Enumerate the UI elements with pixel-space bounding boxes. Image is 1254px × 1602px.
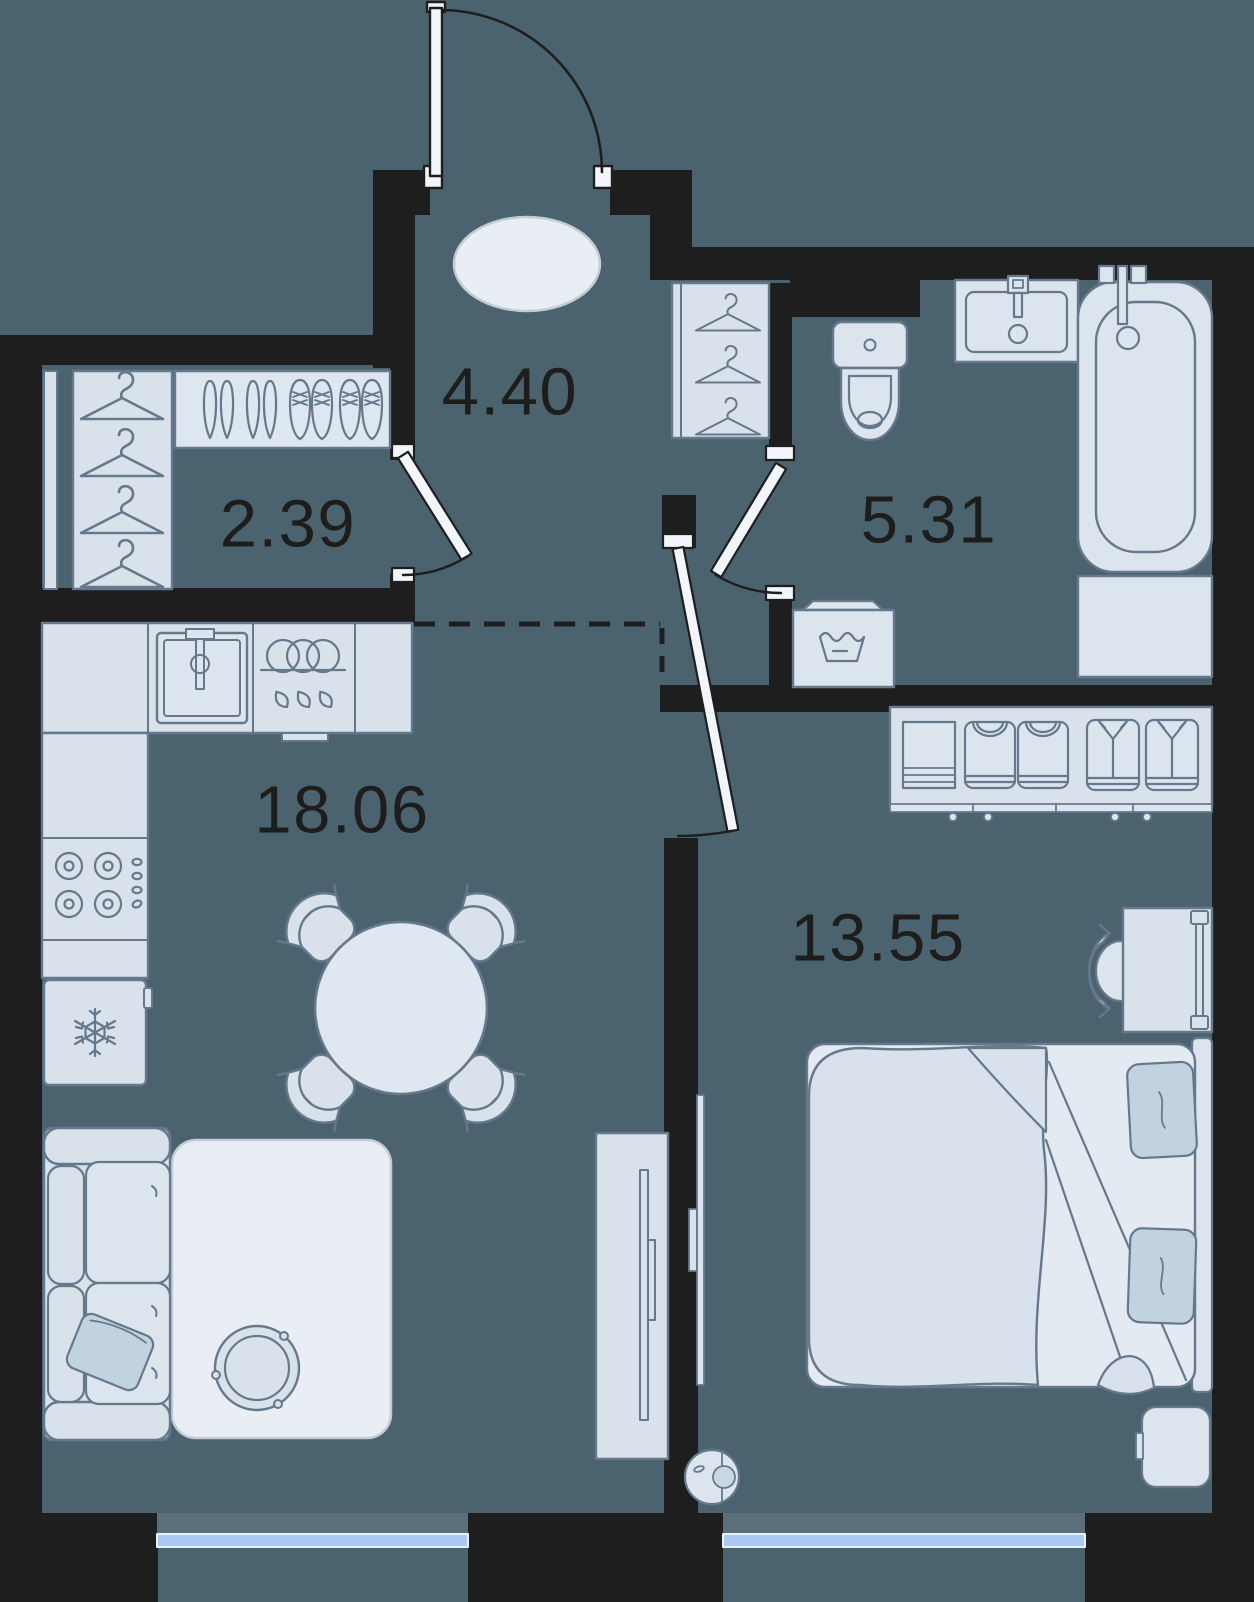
room-area-label-hallway: 4.40 <box>442 354 578 431</box>
hanger-rack <box>73 371 172 589</box>
folded-tshirt-icon <box>1018 722 1068 788</box>
tv-console-icon <box>596 1133 668 1459</box>
entry-door-icon <box>424 2 612 188</box>
folded-clothes-icon <box>903 722 955 788</box>
wall-left <box>0 335 42 1513</box>
wall-entry-right-jamb <box>610 170 692 215</box>
nightstand-icon <box>1136 1407 1210 1487</box>
kitchen-zone-dashed-boundary <box>414 624 662 683</box>
room-area-label-wardrobe: 2.39 <box>220 486 356 563</box>
wall-right <box>1212 247 1254 1602</box>
wall-bathroom-top <box>650 247 1254 280</box>
bathroom-door-icon <box>711 446 794 600</box>
bathroom-counter <box>1078 576 1212 677</box>
clothes-rail-icon <box>890 804 1212 821</box>
kitchen-sink-icon <box>157 629 247 723</box>
wardrobe-door-icon <box>392 444 472 582</box>
wall-wardrobe-bottom <box>42 588 415 623</box>
bathroom-furniture <box>793 266 1212 687</box>
floor-plan-drawing <box>0 0 1254 1602</box>
floor-plan: 4.40 2.39 5.31 18.06 13.55 <box>0 0 1254 1602</box>
bathtub-icon <box>1078 266 1212 572</box>
kitchen-counter-left <box>42 733 148 978</box>
sofa-icon <box>44 1128 170 1440</box>
dining-table-icon <box>315 922 487 1094</box>
folded-shirt-icon <box>1146 720 1198 790</box>
room-area-label-bedroom: 13.55 <box>790 900 965 977</box>
living-room-window <box>157 1513 468 1547</box>
bed-pillow-icon <box>1127 1061 1198 1158</box>
desk-icon <box>1123 908 1212 1032</box>
bedroom-wardrobe <box>890 707 1212 821</box>
wall-bottom-left <box>0 1513 158 1602</box>
bed-icon <box>807 1038 1212 1394</box>
wall-entry-left-jamb <box>373 170 430 215</box>
folded-shirt-icon <box>1087 720 1139 790</box>
bedroom-furniture <box>685 707 1212 1504</box>
fridge-icon <box>44 980 152 1085</box>
room-area-label-kitchen-living: 18.06 <box>254 772 429 849</box>
robot-vacuum-icon <box>685 1450 739 1504</box>
bathroom-sink-icon <box>955 276 1078 362</box>
entry-rug-icon <box>454 217 600 311</box>
dining-set <box>269 876 533 1140</box>
wall-bottom-right <box>1085 1513 1254 1602</box>
kitchen-furniture <box>42 623 533 1140</box>
wall-bath-door-side <box>769 588 792 687</box>
bedroom-window <box>723 1513 1085 1547</box>
room-area-label-bathroom: 5.31 <box>861 482 997 559</box>
wall-bottom-middle <box>468 1513 723 1602</box>
washing-machine-icon <box>793 601 894 687</box>
wall-duct <box>790 280 920 317</box>
hallway-closet <box>672 283 769 438</box>
folded-tshirt-icon <box>965 722 1015 788</box>
bed-pillow-icon <box>1127 1228 1196 1324</box>
wall-closet-bath <box>769 283 792 455</box>
toilet-icon <box>833 322 907 440</box>
shoe-shelf <box>175 371 390 448</box>
living-furniture <box>44 1128 668 1459</box>
wall-wardrobe-top <box>0 335 415 365</box>
